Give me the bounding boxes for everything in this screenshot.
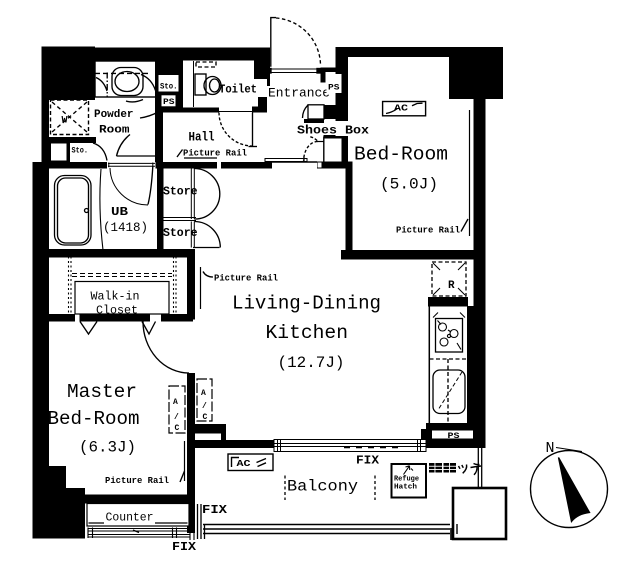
svg-text:Balcony: Balcony — [287, 478, 358, 496]
svg-text:AC: AC — [394, 103, 408, 114]
svg-text:A: A — [173, 398, 178, 407]
svg-text:C: C — [175, 424, 180, 433]
svg-text:Closet: Closet — [96, 304, 138, 318]
svg-text:/: / — [202, 402, 207, 411]
svg-text:(12.7J): (12.7J) — [278, 354, 345, 372]
svg-text:Walk-in: Walk-in — [91, 290, 140, 304]
svg-text:Hall: Hall — [189, 131, 215, 145]
svg-text:N: N — [546, 440, 555, 457]
svg-text:Store: Store — [163, 227, 198, 240]
svg-text:(5.0J): (5.0J) — [380, 176, 438, 194]
svg-text:R: R — [448, 280, 455, 292]
svg-text:Room: Room — [99, 125, 130, 137]
svg-text:Sto.: Sto. — [72, 146, 89, 156]
svg-text:Picture Rail: Picture Rail — [396, 225, 460, 236]
svg-text:Bed-Room: Bed-Room — [354, 144, 448, 166]
svg-text:Picture Rail: Picture Rail — [214, 273, 278, 284]
svg-text:C: C — [203, 413, 208, 422]
svg-text:Kitchen: Kitchen — [266, 322, 349, 344]
svg-text:Counter: Counter — [106, 511, 154, 525]
svg-text:Shoes Box: Shoes Box — [297, 124, 369, 138]
svg-text:PS: PS — [448, 431, 460, 441]
svg-text:PS: PS — [328, 83, 340, 93]
svg-text:Store: Store — [163, 186, 198, 199]
svg-text:FIX: FIX — [356, 454, 380, 468]
svg-text:/: / — [174, 413, 179, 422]
svg-text:AC: AC — [237, 458, 251, 469]
svg-text:PS: PS — [163, 97, 175, 107]
svg-text:W: W — [62, 116, 68, 127]
svg-text:Entrance: Entrance — [268, 87, 330, 101]
svg-text:(1418): (1418) — [103, 221, 148, 235]
svg-text:FIX: FIX — [202, 503, 228, 517]
svg-text:Toilet: Toilet — [219, 83, 257, 97]
svg-text:UB: UB — [111, 205, 128, 219]
svg-text:(6.3J): (6.3J) — [79, 439, 136, 457]
svg-text:Bed-Room: Bed-Room — [48, 408, 140, 430]
svg-text:FIX: FIX — [172, 540, 197, 554]
svg-text:Hatch: Hatch — [394, 484, 417, 492]
svg-text:Powder: Powder — [94, 109, 134, 121]
svg-text:Refuge: Refuge — [394, 476, 419, 484]
svg-text:Living-Dining: Living-Dining — [232, 293, 381, 315]
svg-text:Master: Master — [67, 381, 137, 403]
svg-text:Sto.: Sto. — [160, 82, 178, 92]
svg-text:Picture Rail: Picture Rail — [183, 148, 247, 159]
svg-text:A: A — [201, 389, 206, 398]
svg-text:Picture Rail: Picture Rail — [105, 475, 169, 486]
